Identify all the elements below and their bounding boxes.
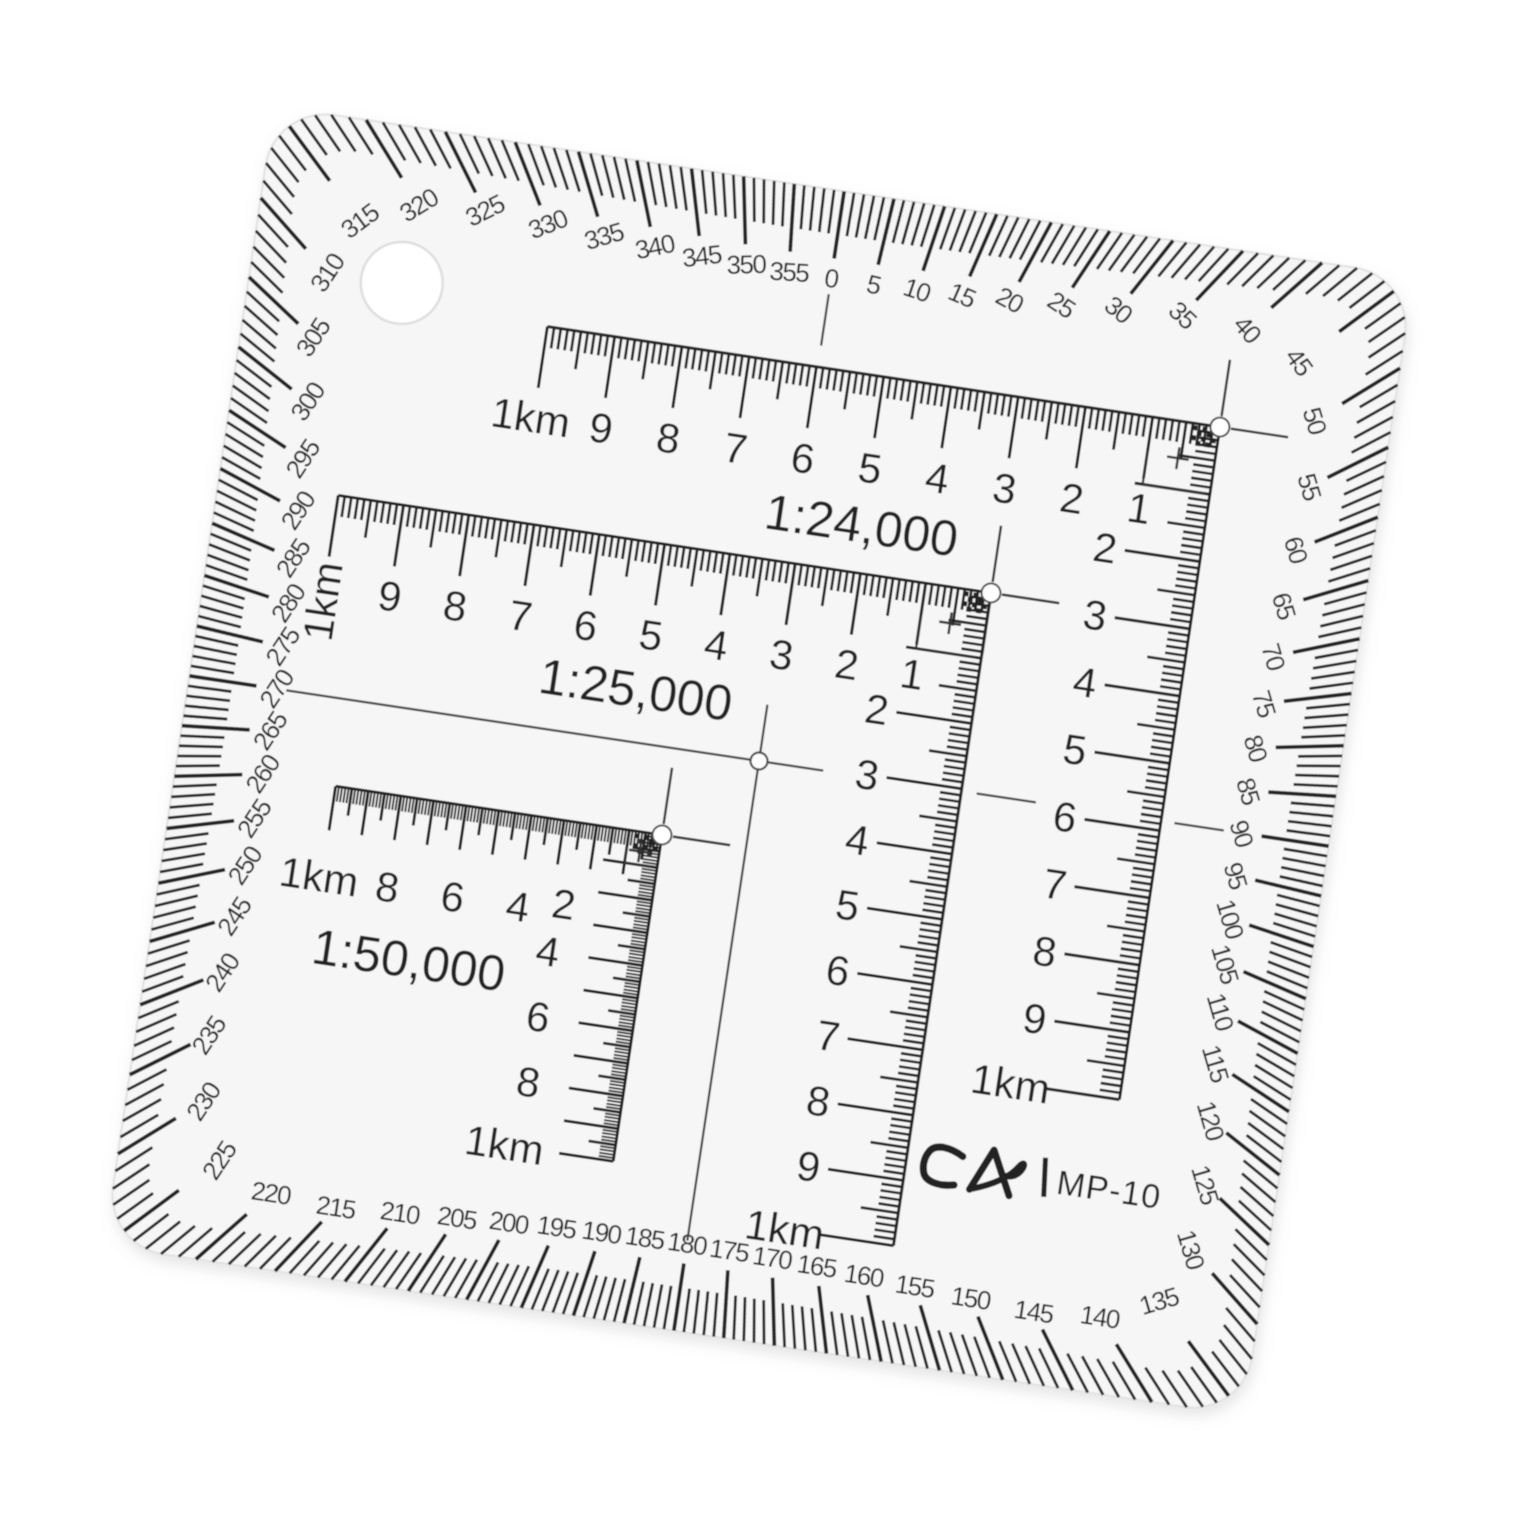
svg-text:145: 145: [1012, 1294, 1056, 1330]
svg-text:185: 185: [623, 1220, 667, 1256]
svg-text:205: 205: [435, 1200, 479, 1236]
svg-text:140: 140: [1078, 1299, 1122, 1335]
svg-text:190: 190: [580, 1215, 624, 1251]
svg-text:355: 355: [769, 256, 811, 288]
svg-text:155: 155: [893, 1268, 937, 1304]
svg-text:150: 150: [949, 1280, 993, 1316]
svg-text:345: 345: [680, 239, 723, 273]
svg-text:210: 210: [378, 1195, 422, 1231]
svg-text:350: 350: [726, 249, 767, 280]
svg-text:220: 220: [249, 1175, 293, 1211]
svg-text:215: 215: [314, 1190, 358, 1226]
svg-text:160: 160: [842, 1258, 886, 1294]
svg-text:200: 200: [487, 1205, 531, 1241]
svg-text:195: 195: [535, 1210, 579, 1246]
svg-text:180: 180: [665, 1226, 709, 1262]
